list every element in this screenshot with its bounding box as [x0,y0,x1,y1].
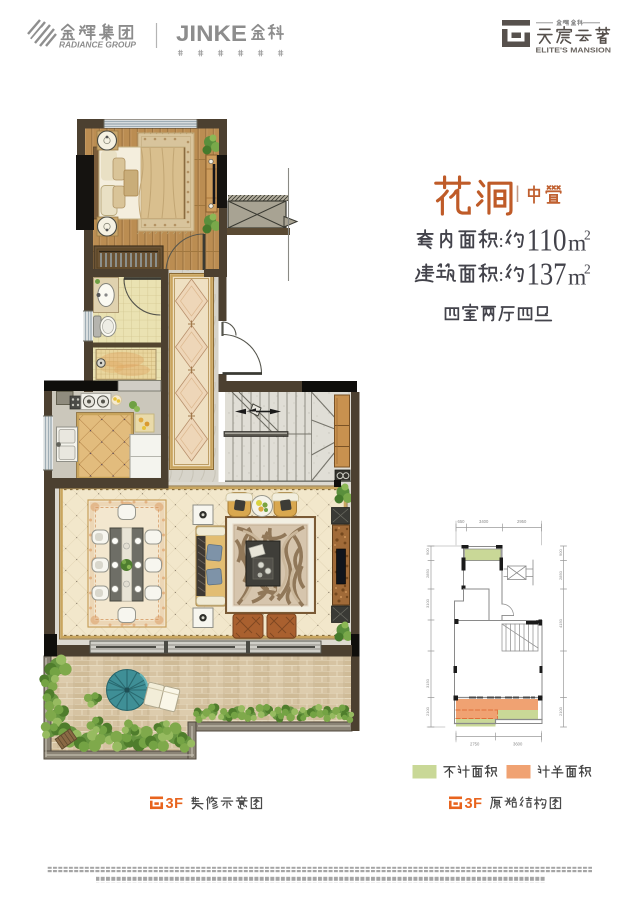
svg-text:3F: 3F [465,796,483,812]
svg-text::: : [499,265,504,286]
svg-text:2850: 2850 [425,568,430,578]
svg-text:3600: 3600 [513,742,523,747]
svg-text:2100: 2100 [425,706,430,716]
svg-text:RADIANCE GROUP: RADIANCE GROUP [59,41,137,50]
svg-text:JINKE: JINKE [176,21,247,46]
svg-text:900: 900 [425,548,430,555]
svg-text:650: 650 [458,519,466,524]
svg-text::: : [499,231,504,252]
svg-text:900: 900 [558,549,563,556]
svg-text:3150: 3150 [425,678,430,688]
svg-text:ELITE'S MANSION: ELITE'S MANSION [536,46,612,55]
svg-text:2750: 2750 [470,742,480,747]
svg-text:2: 2 [584,262,591,277]
svg-text:2850: 2850 [558,570,563,580]
svg-text:4150: 4150 [558,618,563,628]
svg-text:2: 2 [584,228,591,243]
svg-text:3F: 3F [166,796,184,812]
svg-text:137: 137 [527,257,567,292]
svg-text:3100: 3100 [425,598,430,608]
svg-text:110: 110 [527,223,567,258]
svg-text:2100: 2100 [558,706,563,716]
svg-text:3400: 3400 [479,519,489,524]
svg-text:2950: 2950 [517,519,527,524]
